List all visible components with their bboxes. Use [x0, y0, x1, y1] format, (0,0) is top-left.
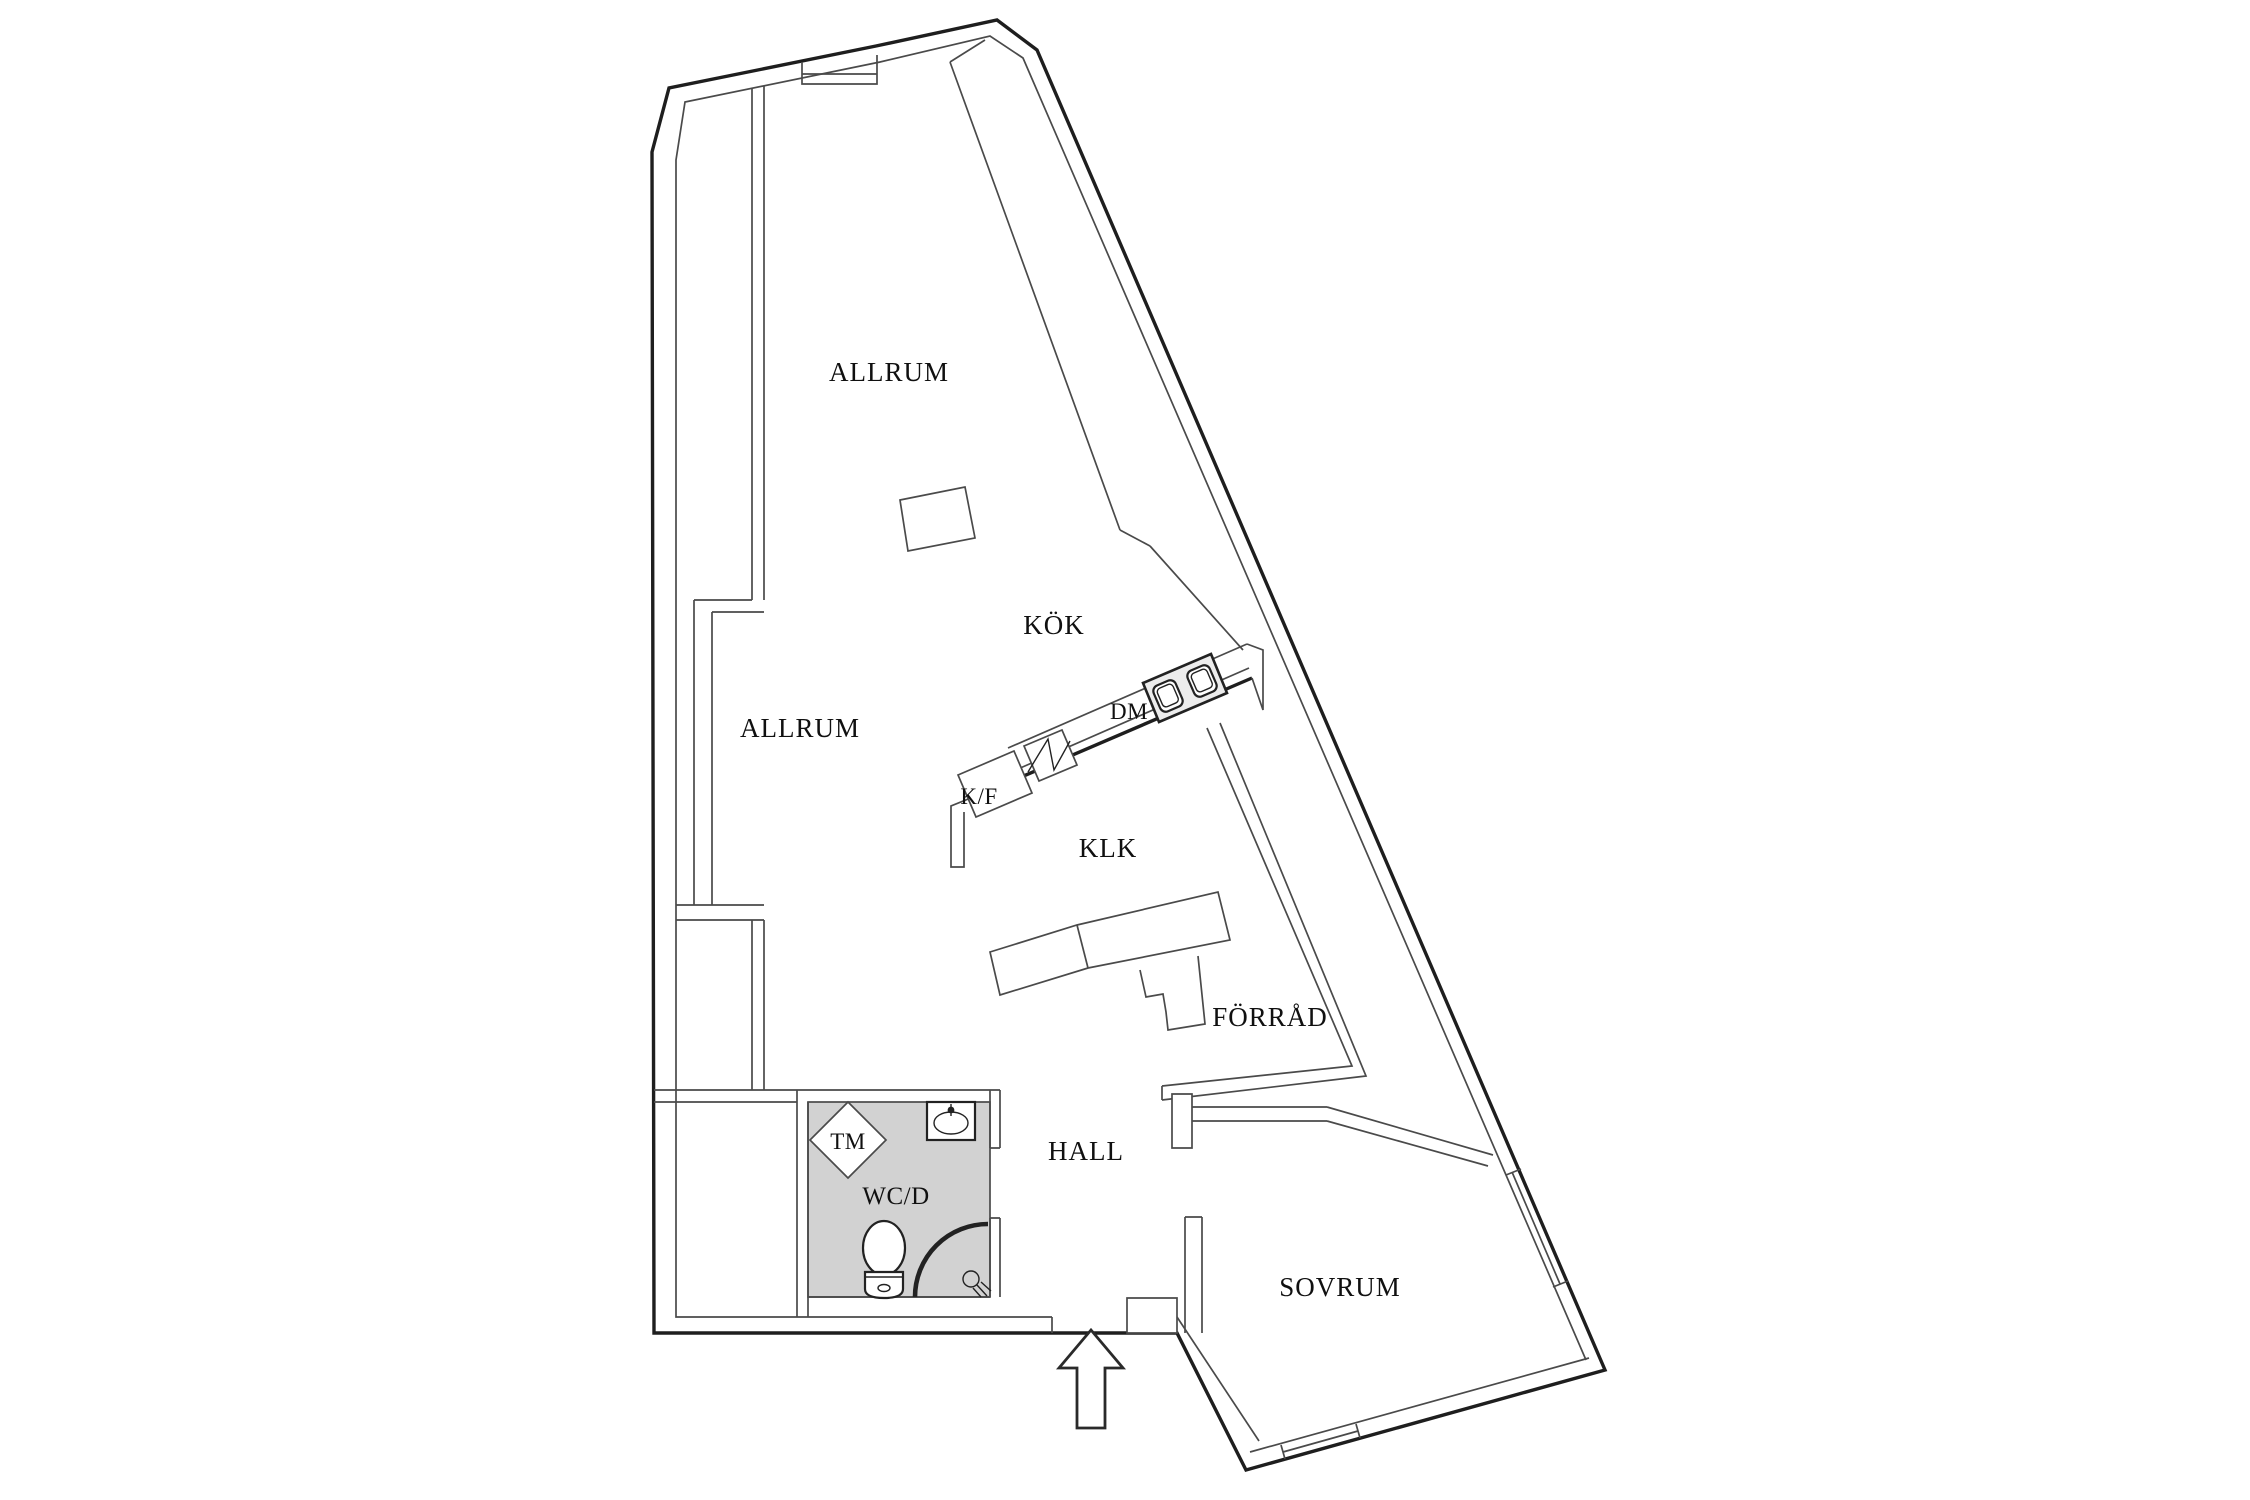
wc-room — [654, 1090, 1000, 1317]
entry-diagonal-inner-face — [1177, 1317, 1259, 1441]
left-window-bay-walls — [676, 86, 764, 1090]
room-label-klk: KLK — [1079, 833, 1138, 863]
toilet-icon — [863, 1221, 905, 1298]
fixture-label-tm: TM — [830, 1129, 866, 1154]
exterior-walls — [652, 20, 1605, 1470]
fixture-label-kf: K/F — [960, 784, 997, 809]
room-label-kok: KÖK — [1023, 610, 1085, 640]
sovrum-south-inner-face — [1250, 1358, 1589, 1452]
sovrum-north-wall — [1192, 1107, 1493, 1166]
room-label-forrad: FÖRRÅD — [1212, 1002, 1328, 1032]
fixture-label-dm: DM — [1110, 699, 1148, 724]
sovrum-west-wall — [1185, 1217, 1202, 1333]
right-facade-window-band — [950, 40, 1243, 650]
room-label-allrum-top: ALLRUM — [829, 357, 949, 387]
washbasin-icon — [927, 1102, 975, 1140]
outer-wall-outline — [652, 20, 1605, 1470]
room-label-allrum-left: ALLRUM — [740, 713, 860, 743]
sovrum-east-window — [1506, 1169, 1568, 1287]
room-label-wcd: WC/D — [862, 1183, 929, 1210]
klk-wardrobes — [990, 892, 1230, 1030]
floor-plan-page: ALLRUM KÖK ALLRUM DM K/F KLK FÖRRÅD TM W… — [0, 0, 2250, 1500]
entrance-arrow-icon — [1059, 1330, 1123, 1428]
table-icon — [900, 487, 975, 551]
hall-forrad-door-jamb — [1172, 1094, 1192, 1148]
entrance-door-jamb — [1127, 1298, 1177, 1333]
room-label-hall: HALL — [1048, 1136, 1124, 1166]
kitchen-sink-icon — [1143, 654, 1227, 722]
room-label-sovrum: SOVRUM — [1279, 1272, 1401, 1302]
floor-plan: ALLRUM KÖK ALLRUM DM K/F KLK FÖRRÅD TM W… — [0, 0, 2250, 1500]
left-interior-partitions — [676, 86, 764, 1090]
